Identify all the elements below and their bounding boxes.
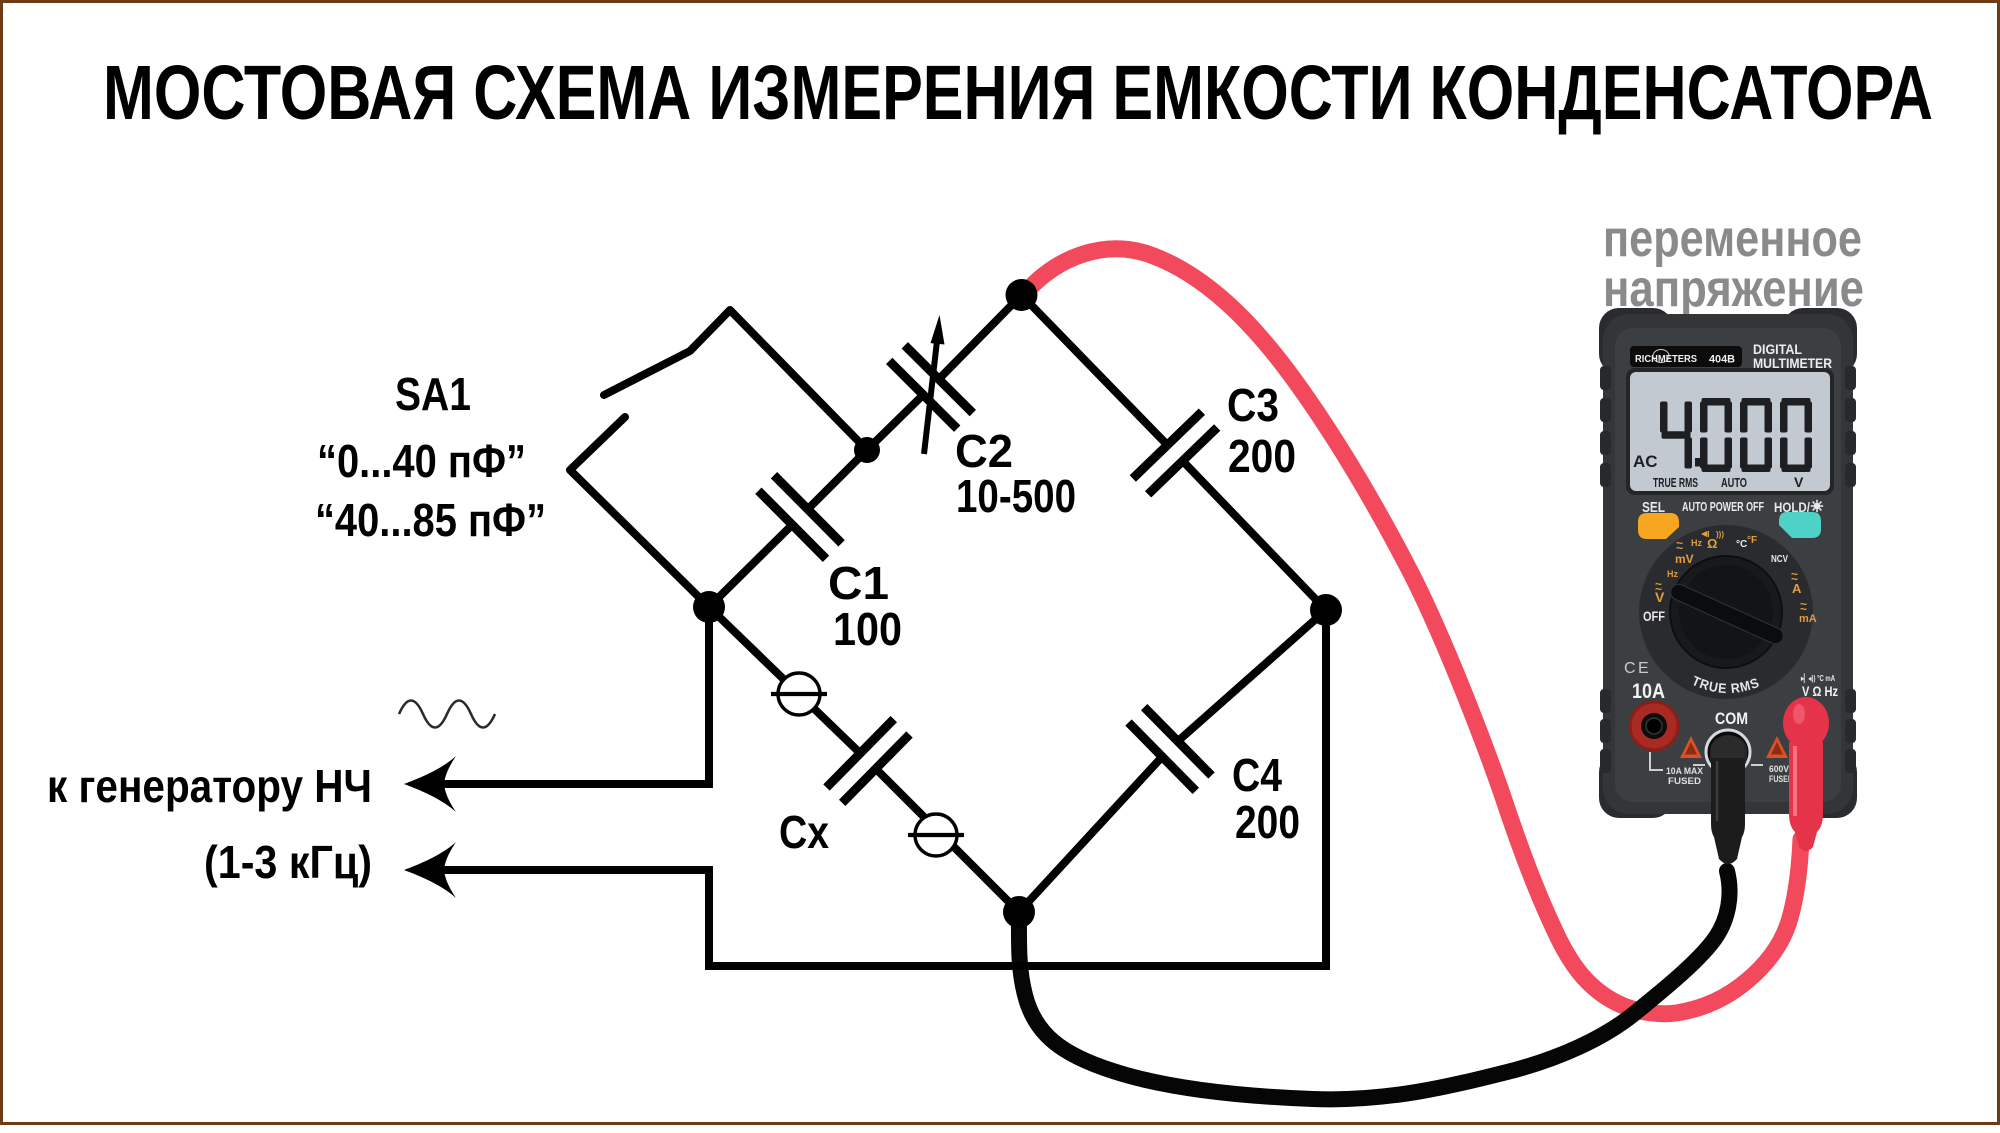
svg-text:V: V	[1794, 474, 1804, 490]
svg-text:к генератору НЧ: к генератору НЧ	[47, 760, 372, 812]
svg-text:100: 100	[833, 603, 902, 655]
svg-text:~: ~	[1676, 541, 1683, 555]
svg-text:“0...40 пФ”: “0...40 пФ”	[317, 435, 526, 487]
svg-text:200: 200	[1228, 430, 1296, 482]
svg-text:(1-3 кГц): (1-3 кГц)	[204, 836, 372, 888]
svg-text:AUTO POWER OFF: AUTO POWER OFF	[1682, 500, 1764, 514]
svg-text:~: ~	[1791, 572, 1798, 586]
svg-text:°C: °C	[1736, 539, 1747, 550]
svg-text:“40...85 пФ”: “40...85 пФ”	[315, 494, 546, 546]
svg-text:AC: AC	[1633, 452, 1658, 471]
svg-text:))): )))	[1716, 530, 1724, 539]
svg-text:AUTO: AUTO	[1721, 475, 1747, 490]
svg-text:COM: COM	[1715, 709, 1748, 728]
svg-text:°F: °F	[1747, 535, 1757, 546]
svg-text:C3: C3	[1227, 379, 1279, 431]
svg-text:C4: C4	[1232, 749, 1282, 801]
svg-text:Cx: Cx	[779, 806, 829, 858]
svg-text:RICHMETERS: RICHMETERS	[1635, 354, 1697, 365]
svg-text:CE: CE	[1624, 660, 1651, 677]
svg-text:МОСТОВАЯ СХЕМА ИЗМЕРЕНИЯ ЕМКОС: МОСТОВАЯ СХЕМА ИЗМЕРЕНИЯ ЕМКОСТИ КОНДЕНС…	[103, 50, 1933, 136]
svg-text:10A: 10A	[1632, 680, 1665, 703]
svg-text:Hz: Hz	[1691, 538, 1702, 548]
svg-text:Hz: Hz	[1667, 569, 1678, 579]
svg-text:10-500: 10-500	[956, 470, 1076, 522]
svg-text:~: ~	[1655, 582, 1662, 596]
svg-text:V Ω Hz: V Ω Hz	[1802, 683, 1838, 699]
svg-text:~: ~	[1800, 602, 1807, 616]
svg-text:OFF: OFF	[1643, 608, 1665, 624]
svg-text:404B: 404B	[1709, 354, 1735, 366]
svg-text:NCV: NCV	[1771, 554, 1788, 565]
svg-text:TRUE RMS: TRUE RMS	[1653, 475, 1698, 490]
svg-text:C1: C1	[828, 557, 889, 609]
svg-text:10A MAX: 10A MAX	[1666, 766, 1703, 776]
svg-text:600V: 600V	[1769, 764, 1789, 774]
svg-text:FUSED: FUSED	[1668, 776, 1701, 787]
svg-text:SA1: SA1	[395, 368, 471, 420]
svg-text:200: 200	[1235, 796, 1300, 848]
